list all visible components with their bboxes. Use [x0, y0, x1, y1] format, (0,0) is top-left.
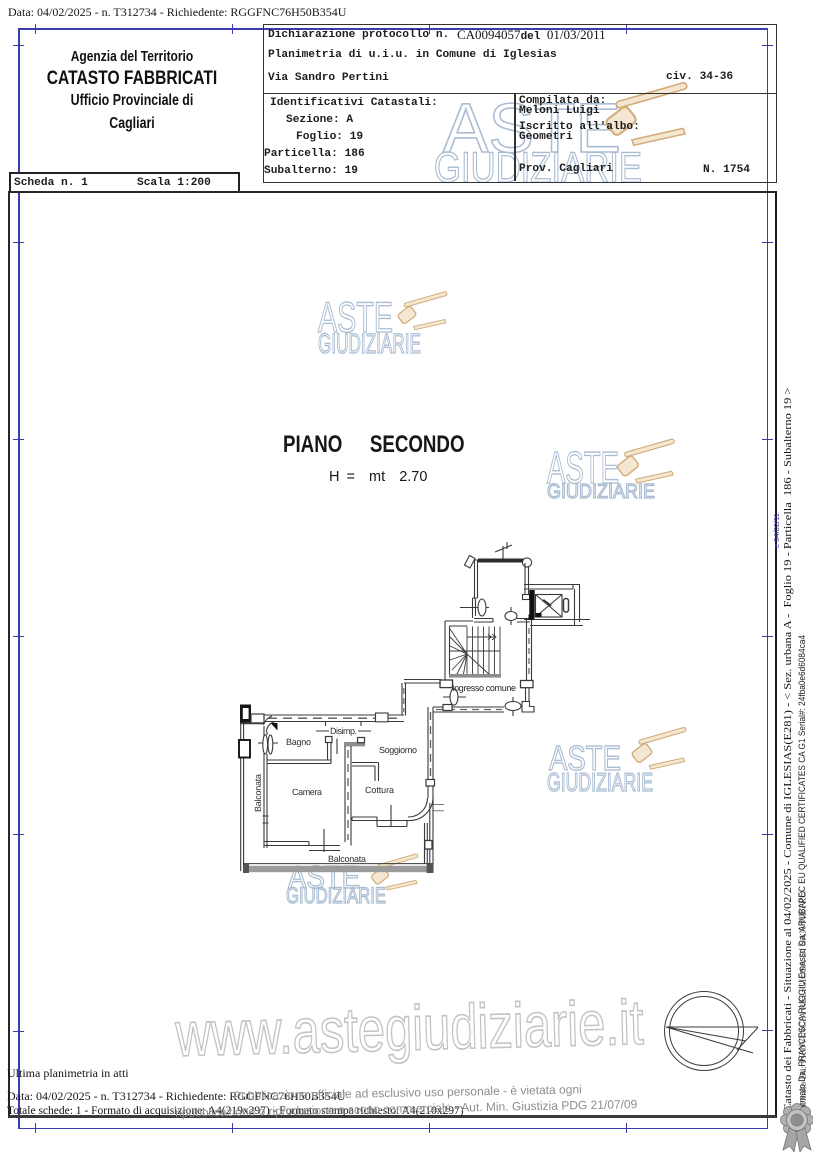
svg-text:Disimp.: Disimp.	[330, 726, 357, 736]
svg-text:Ingresso comune: Ingresso comune	[452, 683, 516, 693]
svg-text:Camera: Camera	[292, 787, 322, 797]
svg-text:Cottura: Cottura	[365, 785, 394, 795]
svg-text:Balconata: Balconata	[253, 774, 263, 812]
svg-text:Soggiorno: Soggiorno	[379, 745, 417, 755]
svg-text:Bagno: Bagno	[286, 737, 311, 747]
svg-text:Balconata: Balconata	[328, 854, 366, 864]
